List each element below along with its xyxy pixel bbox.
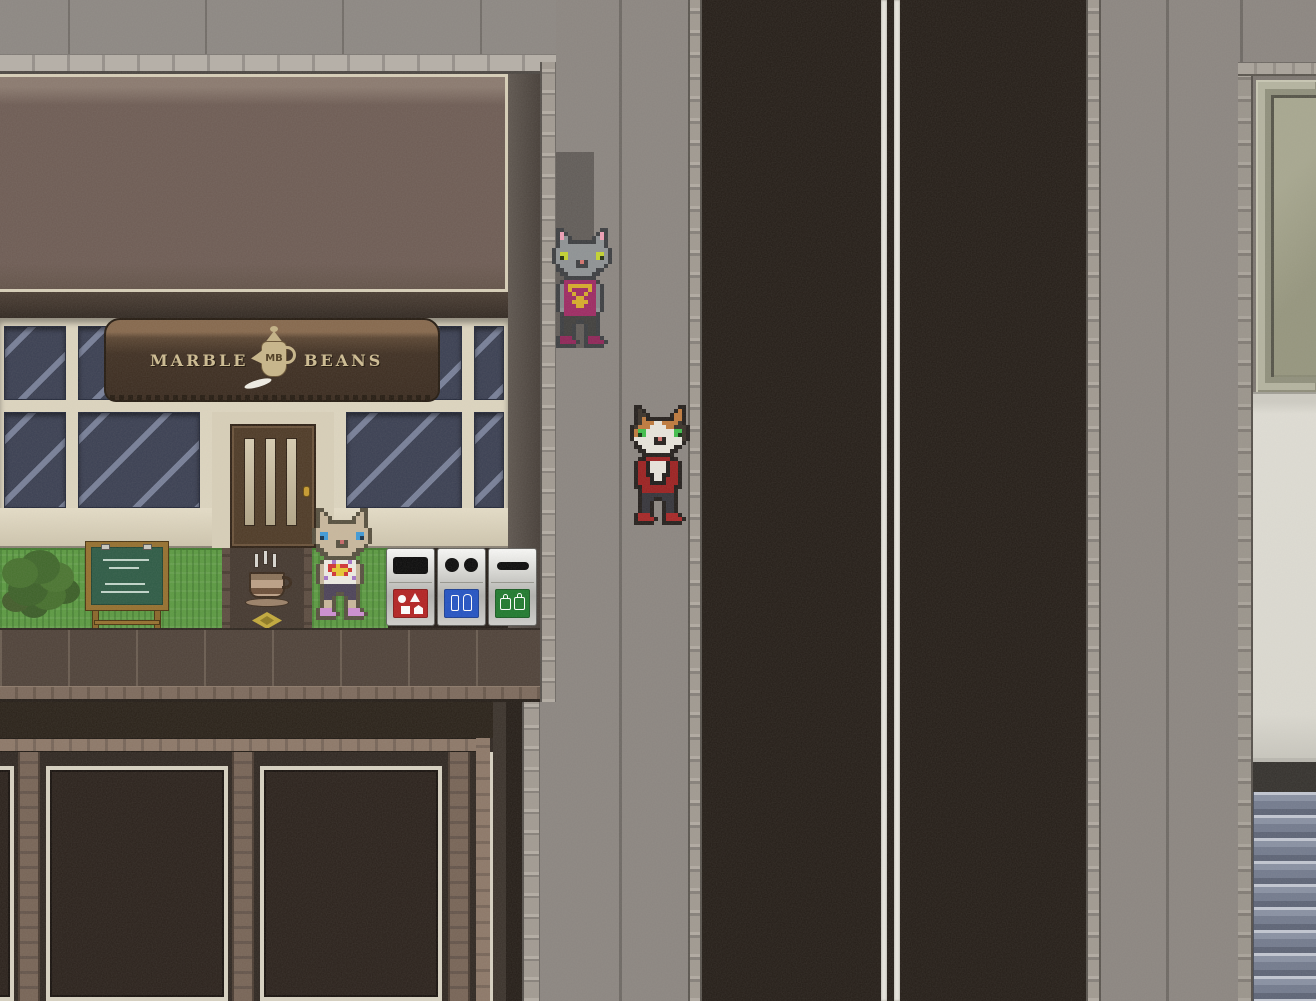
- shop-door[interactable]: [230, 424, 316, 548]
- bag-bin[interactable]: [488, 548, 537, 626]
- bin-slot: [464, 558, 478, 572]
- npc-tan-cat[interactable]: [312, 508, 372, 620]
- shop-facade-beam: [0, 292, 508, 318]
- pot-swoosh: [244, 376, 273, 390]
- shop-awning-facade: [0, 74, 508, 292]
- shopfront-brick-row: [0, 686, 540, 702]
- pot-monogram: MB: [261, 341, 287, 377]
- bin-slot: [445, 558, 459, 572]
- brick-pillar: [232, 752, 254, 1001]
- bottle-bin-label: [444, 589, 479, 618]
- board-crossbar: [94, 620, 160, 625]
- chalkboard-surface: [86, 542, 168, 610]
- shop-brick-course: [0, 54, 556, 74]
- wall-panel: [46, 766, 228, 1001]
- sign-scallop-edge: [110, 395, 434, 400]
- curb-bricks: [1086, 0, 1101, 1001]
- bin-divider: [440, 582, 483, 583]
- door-glass-panel: [265, 438, 276, 526]
- board-clip: [101, 544, 110, 550]
- window-pane: [474, 326, 504, 400]
- door-glass-panel: [286, 438, 297, 526]
- lower-building: [0, 702, 506, 1001]
- road: [702, 0, 1086, 1001]
- wall-seam: [342, 0, 344, 54]
- bag-icon: [500, 598, 511, 610]
- bin-divider: [491, 582, 534, 583]
- shop-corner-bricks: [540, 62, 556, 702]
- lower-building-top: [0, 702, 506, 738]
- wall-seam: [68, 0, 70, 54]
- door-knob: [303, 486, 310, 497]
- sign-text-left: MARBLE: [150, 351, 248, 370]
- wall-panel: [260, 766, 442, 1001]
- curb-bricks: [688, 0, 702, 1001]
- wall-seam: [205, 0, 207, 54]
- bag-bin-label: [495, 589, 530, 618]
- chalk-scribble: [101, 591, 149, 593]
- cup-handle: [282, 576, 292, 589]
- window-pane: [474, 412, 504, 508]
- lower-brick-border: [0, 738, 490, 752]
- waste-icon: [398, 595, 406, 603]
- pot-lid: [262, 331, 286, 341]
- roller-shutter: [1253, 792, 1316, 1001]
- waste-icon: [410, 593, 420, 602]
- center-line: [894, 0, 900, 1001]
- street-scene: MARBLE BEANS MB: [0, 0, 1316, 1001]
- coffee-pot-icon: MB: [254, 326, 294, 398]
- curb-bricks: [522, 702, 540, 1001]
- bush: [2, 558, 38, 588]
- right-building-window: [1256, 80, 1316, 392]
- steam-line: [273, 554, 276, 567]
- waste-bin[interactable]: [386, 548, 435, 626]
- sidewalk-center: [556, 0, 688, 702]
- waste-icon: [414, 605, 423, 614]
- window-glass: [1271, 95, 1316, 377]
- sidewalk-seam: [619, 0, 622, 1001]
- door-glass-panel: [244, 438, 255, 526]
- bin-slot: [497, 562, 529, 570]
- coffee-doormat: [222, 548, 312, 638]
- chalk-scribble: [105, 583, 145, 585]
- window-pane: [346, 412, 462, 508]
- bag-handle-icon: [503, 594, 508, 599]
- brick-pillar: [448, 752, 470, 1001]
- sidewalk-seam: [1240, 0, 1243, 62]
- cup-saucer: [245, 598, 289, 607]
- sidewalk-seam: [1166, 0, 1169, 1001]
- waste-icon: [401, 606, 410, 614]
- bag-handle-icon: [517, 593, 522, 598]
- sign-text-right: BEANS: [304, 351, 383, 370]
- steam-line: [255, 554, 258, 567]
- pot-handle: [285, 346, 296, 364]
- bottle-icon: [463, 594, 472, 611]
- brick-pillar: [18, 752, 40, 1001]
- bottle-bin[interactable]: [437, 548, 486, 626]
- bottle-icon: [451, 595, 459, 611]
- doormat-diamond-inner: [260, 616, 274, 625]
- window-pane: [4, 326, 66, 400]
- lower-edge-shadow: [493, 702, 506, 1001]
- bin-slot: [393, 557, 428, 574]
- waste-bin-label: [393, 589, 428, 618]
- window-pane: [78, 412, 200, 508]
- npc-calico-cat[interactable]: [630, 405, 690, 525]
- doormat-diamond: [252, 612, 282, 629]
- coffee-cup-icon: [249, 572, 285, 598]
- menu-chalkboard[interactable]: [86, 542, 168, 630]
- sidewalk-center-lower: [540, 702, 688, 1001]
- right-building-top-trim: [1238, 62, 1316, 76]
- right-building-lower-wall: [1253, 392, 1316, 758]
- lower-right-bricks: [476, 738, 490, 1001]
- chalk-scribble: [103, 559, 149, 561]
- shopfront-tiles: [0, 628, 540, 686]
- window-pane: [4, 412, 66, 508]
- bin-divider: [389, 582, 432, 583]
- right-building-left-trim: [1238, 76, 1253, 1001]
- chalk-scribble: [109, 567, 139, 569]
- wall-seam: [480, 0, 482, 54]
- npc-gray-cat[interactable]: [552, 228, 612, 348]
- board-clip: [143, 544, 152, 550]
- marble-beans-sign: MARBLE BEANS MB: [104, 318, 440, 402]
- steam-line: [264, 551, 267, 564]
- shutter-housing: [1253, 758, 1316, 792]
- bag-icon: [514, 597, 525, 610]
- center-line: [881, 0, 887, 1001]
- wall-panel: [0, 766, 14, 1001]
